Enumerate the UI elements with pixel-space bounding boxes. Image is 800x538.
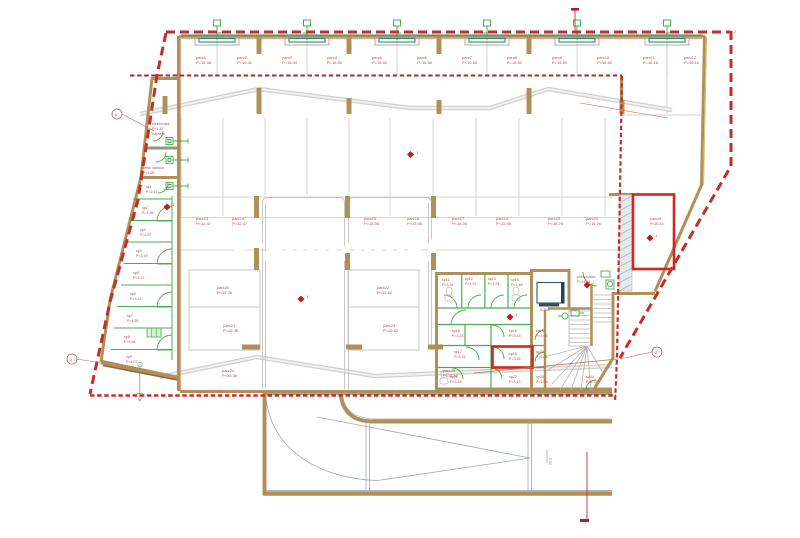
svg-text:P=1.91: P=1.91	[465, 282, 477, 286]
svg-text:sp13: sp13	[488, 277, 496, 281]
svg-text:P=1.05: P=1.05	[536, 380, 548, 384]
svg-text:sp22: sp22	[509, 375, 517, 379]
svg-text:sp24: sp24	[586, 375, 594, 379]
svg-text:sp4: sp4	[136, 249, 142, 253]
svg-text:P=16.38: P=16.38	[196, 60, 212, 65]
svg-text:P=12.47: P=12.47	[232, 221, 248, 226]
svg-text:sp18: sp18	[509, 352, 517, 356]
svg-text:P=15.36: P=15.36	[217, 290, 233, 295]
svg-text:elektronika: elektronika	[152, 122, 169, 126]
svg-text:sp19: sp19	[536, 329, 544, 333]
svg-text:5.50: 5.50	[548, 458, 552, 465]
svg-text:P=2.41: P=2.41	[146, 190, 158, 194]
svg-text:sp3: sp3	[140, 228, 146, 232]
svg-text:P=16.41: P=16.41	[237, 60, 253, 65]
svg-text:P=16.76: P=16.76	[548, 221, 564, 226]
svg-text:P=16.50: P=16.50	[552, 60, 568, 65]
svg-text:P=3.15: P=3.15	[454, 355, 466, 359]
svg-text:P=15.62: P=15.62	[377, 290, 393, 295]
svg-text:sp8: sp8	[124, 335, 130, 339]
svg-text:P=15.08: P=15.08	[452, 221, 468, 226]
svg-text:P=16.50: P=16.50	[462, 60, 478, 65]
svg-text:sp20: sp20	[536, 350, 544, 354]
svg-text:sp17: sp17	[454, 350, 462, 354]
svg-text:P=15.08: P=15.08	[364, 221, 380, 226]
svg-text:P=16.50: P=16.50	[327, 60, 343, 65]
svg-text:sp15: sp15	[452, 329, 460, 333]
svg-text:sp9: sp9	[126, 355, 132, 359]
svg-text:P=3.24: P=3.24	[442, 283, 454, 287]
svg-text:P=16.50: P=16.50	[417, 60, 433, 65]
svg-text:sp23: sp23	[536, 375, 544, 379]
svg-text:2: 2	[734, 30, 736, 34]
svg-text:sp6: sp6	[130, 292, 136, 296]
svg-text:sp11: sp11	[442, 278, 450, 282]
svg-text:sp14: sp14	[511, 278, 519, 282]
svg-text:P=1.48: P=1.48	[511, 283, 523, 287]
svg-text:P=15.62: P=15.62	[383, 328, 399, 333]
svg-text:P=15.08: P=15.08	[407, 221, 423, 226]
svg-text:sp21: sp21	[450, 375, 458, 379]
svg-text:P=16.18: P=16.18	[643, 60, 659, 65]
svg-text:netw. stanica: netw. stanica	[143, 166, 164, 170]
svg-text:P=3.15: P=3.15	[509, 380, 521, 384]
svg-text:P=4.56: P=4.56	[124, 340, 136, 344]
svg-text:P=4.55: P=4.55	[127, 319, 139, 323]
svg-text:stanprodukt: stanprodukt	[232, 232, 439, 268]
svg-text:P=4.26: P=4.26	[586, 380, 598, 384]
svg-text:sp12: sp12	[465, 277, 473, 281]
svg-text:parc26: parc26	[650, 217, 661, 221]
svg-text:P=16.44: P=16.44	[282, 60, 298, 65]
svg-text:P=15.36: P=15.36	[223, 328, 239, 333]
svg-text:P=2.67: P=2.67	[140, 233, 152, 237]
svg-text:P=1.95: P=1.95	[142, 211, 154, 215]
svg-text:P=3.15: P=3.15	[509, 334, 521, 338]
svg-text:P=15.06: P=15.06	[496, 221, 512, 226]
svg-text:sp5: sp5	[133, 271, 139, 275]
svg-text:sp16: sp16	[509, 329, 517, 333]
svg-text:P=16.50: P=16.50	[597, 60, 613, 65]
svg-text:P=15.36: P=15.36	[222, 373, 238, 378]
svg-text:P=3.15: P=3.15	[452, 334, 464, 338]
svg-text:P=3.16: P=3.16	[130, 297, 142, 301]
svg-text:P=16.12: P=16.12	[684, 60, 700, 65]
svg-text:P=3.19: P=3.19	[136, 254, 148, 258]
svg-text:P=1.65: P=1.65	[143, 171, 155, 175]
svg-text:predprostor: predprostor	[577, 275, 596, 279]
svg-text:naprava: naprava	[152, 132, 165, 136]
svg-text:sp1: sp1	[146, 185, 152, 189]
svg-text:P=26.15: P=26.15	[650, 222, 664, 226]
svg-text:P=1.05: P=1.05	[536, 355, 548, 359]
svg-text:P=3.15: P=3.15	[450, 380, 462, 384]
svg-text:P=16.50: P=16.50	[372, 60, 388, 65]
svg-text:P=1.91: P=1.91	[488, 282, 500, 286]
svg-text:P=1.05: P=1.05	[536, 334, 548, 338]
svg-text:sp2: sp2	[142, 206, 148, 210]
svg-text:KONE: KONE	[540, 308, 551, 312]
svg-text:P=12.47: P=12.47	[196, 221, 212, 226]
svg-text:P=16.50: P=16.50	[507, 60, 523, 65]
svg-text:P=16.76: P=16.76	[586, 221, 602, 226]
svg-text:P=3.15: P=3.15	[509, 357, 521, 361]
svg-text:P=1.47: P=1.47	[152, 127, 164, 131]
svg-text:P=3.17: P=3.17	[133, 276, 145, 280]
svg-text:P=4.07: P=4.07	[126, 360, 138, 364]
svg-text:sp7: sp7	[127, 314, 133, 318]
svg-text:P=14.31: P=14.31	[577, 280, 591, 284]
